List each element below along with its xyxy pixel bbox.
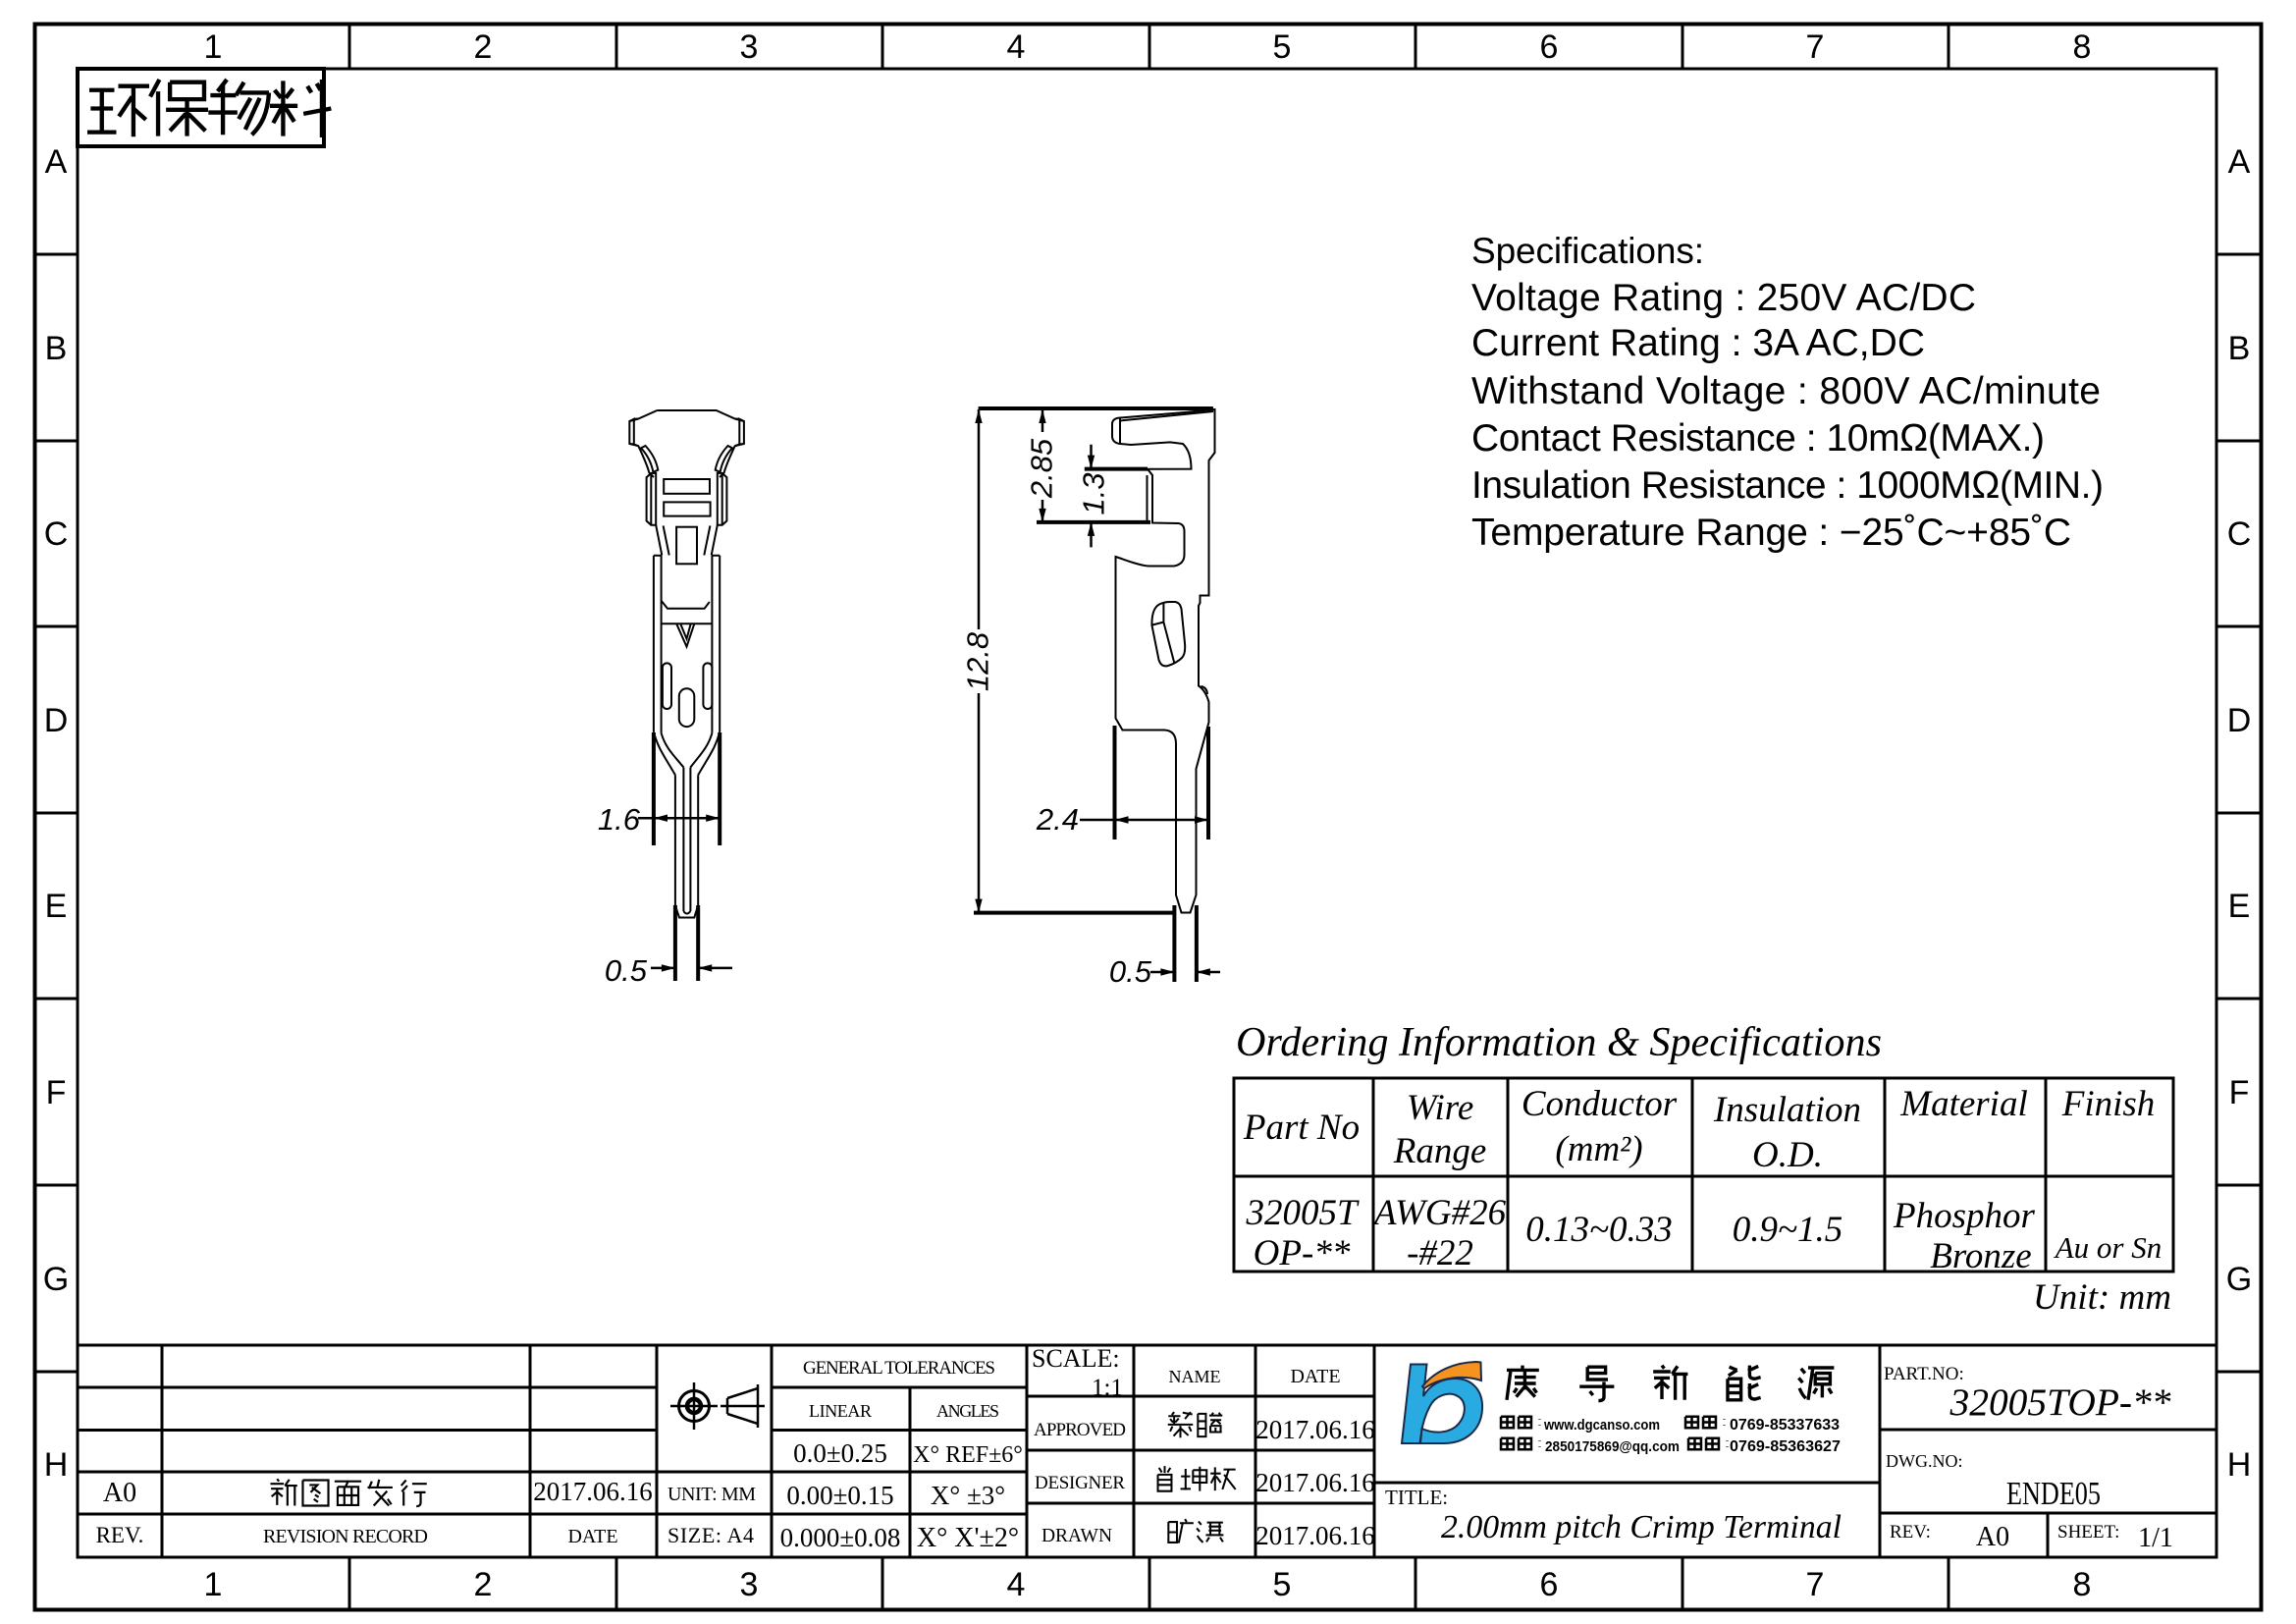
svg-text:GENERAL TOLERANCES: GENERAL TOLERANCES bbox=[803, 1358, 995, 1379]
svg-text:E: E bbox=[2228, 888, 2251, 925]
svg-text:Unit: mm: Unit: mm bbox=[2033, 1277, 2171, 1318]
svg-text:2.00mm pitch Crimp Terminal: 2.00mm pitch Crimp Terminal bbox=[1441, 1509, 1842, 1545]
svg-text:0.0±0.25: 0.0±0.25 bbox=[793, 1438, 887, 1468]
svg-text:Insulation: Insulation bbox=[1713, 1090, 1861, 1130]
svg-text:Phosphor: Phosphor bbox=[1893, 1196, 2036, 1236]
svg-text:5: 5 bbox=[1273, 1566, 1292, 1603]
svg-text:A: A bbox=[45, 143, 68, 181]
svg-text:Withstand Voltage : 800V AC/mi: Withstand Voltage : 800V AC/minute bbox=[1471, 370, 2101, 412]
svg-text:3: 3 bbox=[740, 1566, 759, 1603]
svg-text:2.4: 2.4 bbox=[1036, 802, 1079, 837]
svg-text:0.5: 0.5 bbox=[605, 953, 648, 988]
svg-text:X° REF±6°: X° REF±6° bbox=[913, 1442, 1023, 1468]
svg-text:F: F bbox=[46, 1074, 67, 1111]
svg-text:O.D.: O.D. bbox=[1752, 1135, 1823, 1175]
svg-text:H: H bbox=[44, 1446, 69, 1484]
svg-text:SIZE: A4: SIZE: A4 bbox=[667, 1523, 754, 1547]
svg-text:7: 7 bbox=[1806, 1566, 1825, 1603]
svg-text:SHEET:: SHEET: bbox=[2057, 1522, 2119, 1543]
svg-text:1.6: 1.6 bbox=[598, 802, 641, 837]
svg-text:4: 4 bbox=[1007, 28, 1026, 66]
svg-text:X° ±3°: X° ±3° bbox=[931, 1481, 1005, 1510]
svg-text:(mm²): (mm²) bbox=[1555, 1129, 1642, 1169]
svg-text:ENDE05: ENDE05 bbox=[2006, 1476, 2101, 1512]
svg-text:0769-85363627: 0769-85363627 bbox=[1730, 1438, 1841, 1455]
svg-text:D: D bbox=[44, 702, 69, 739]
svg-text:5: 5 bbox=[1273, 28, 1292, 66]
svg-text:Material: Material bbox=[1899, 1084, 2027, 1124]
svg-text:32005TOP-**: 32005TOP-** bbox=[1949, 1381, 2171, 1424]
svg-text:2017.06.16: 2017.06.16 bbox=[533, 1477, 653, 1506]
svg-text:DESIGNER: DESIGNER bbox=[1035, 1473, 1125, 1493]
svg-text:F: F bbox=[2229, 1074, 2250, 1111]
svg-text:0.00±0.15: 0.00±0.15 bbox=[786, 1481, 893, 1510]
svg-text:B: B bbox=[2228, 330, 2251, 367]
svg-text:Current Rating : 3A AC,DC: Current Rating : 3A AC,DC bbox=[1471, 322, 1925, 364]
svg-text:DATE: DATE bbox=[1290, 1366, 1340, 1387]
svg-text:2017.06.16: 2017.06.16 bbox=[1255, 1468, 1375, 1497]
svg-text:3: 3 bbox=[740, 28, 759, 66]
svg-text:0.000±0.08: 0.000±0.08 bbox=[780, 1523, 901, 1552]
svg-text:UNIT: MM: UNIT: MM bbox=[667, 1484, 756, 1505]
svg-text:A0: A0 bbox=[103, 1478, 136, 1508]
svg-text:Insulation Resistance : 1000MΩ: Insulation Resistance : 1000MΩ(MIN.) bbox=[1471, 464, 2104, 507]
svg-text:-#22: -#22 bbox=[1407, 1233, 1473, 1273]
svg-text:G: G bbox=[2226, 1261, 2252, 1298]
svg-text:2: 2 bbox=[474, 28, 493, 66]
svg-text:0.13~0.33: 0.13~0.33 bbox=[1525, 1210, 1673, 1250]
svg-text:Contact Resistance : 10mΩ(MAX.: Contact Resistance : 10mΩ(MAX.) bbox=[1471, 417, 2045, 460]
svg-text:Conductor: Conductor bbox=[1522, 1084, 1678, 1124]
svg-text:7: 7 bbox=[1806, 28, 1825, 66]
svg-text:OP-**: OP-** bbox=[1254, 1233, 1351, 1273]
svg-text:1:1: 1:1 bbox=[1092, 1375, 1123, 1401]
svg-text:0.5: 0.5 bbox=[1109, 954, 1152, 989]
svg-text:Finish: Finish bbox=[2061, 1084, 2156, 1124]
svg-text:Voltage Rating : 250V AC/DC: Voltage Rating : 250V AC/DC bbox=[1471, 277, 1976, 319]
svg-text:0.9~1.5: 0.9~1.5 bbox=[1733, 1210, 1843, 1250]
svg-text:1/1: 1/1 bbox=[2138, 1523, 2173, 1553]
svg-text:REVISION RECORD: REVISION RECORD bbox=[263, 1526, 428, 1547]
svg-text:E: E bbox=[45, 888, 68, 925]
svg-text:B: B bbox=[45, 330, 68, 367]
svg-text:12.8: 12.8 bbox=[961, 631, 995, 691]
svg-text:D: D bbox=[2227, 702, 2252, 739]
svg-text:REV.: REV. bbox=[96, 1523, 144, 1547]
svg-text:1: 1 bbox=[204, 28, 223, 66]
svg-text:4: 4 bbox=[1007, 1566, 1026, 1603]
svg-text:2017.06.16: 2017.06.16 bbox=[1255, 1521, 1375, 1550]
svg-text:Part No: Part No bbox=[1243, 1108, 1360, 1148]
svg-text:H: H bbox=[2227, 1446, 2252, 1484]
svg-text:SCALE:: SCALE: bbox=[1032, 1344, 1120, 1373]
svg-text:2850175869@qq.com: 2850175869@qq.com bbox=[1545, 1438, 1680, 1455]
svg-text:Ordering Information & Specifi: Ordering Information & Specifications bbox=[1236, 1020, 1882, 1065]
svg-text:Wire: Wire bbox=[1407, 1088, 1474, 1128]
svg-text:2: 2 bbox=[474, 1566, 493, 1603]
svg-text:6: 6 bbox=[1540, 28, 1559, 66]
svg-text:REV:: REV: bbox=[1890, 1522, 1931, 1543]
svg-text:APPROVED: APPROVED bbox=[1034, 1420, 1126, 1440]
svg-text:X° X'±2°: X° X'±2° bbox=[917, 1523, 1019, 1553]
svg-text:C: C bbox=[44, 515, 69, 553]
svg-text:Temperature Range : −25˚C~+85˚: Temperature Range : −25˚C~+85˚C bbox=[1471, 512, 2071, 554]
svg-text:DRAWN: DRAWN bbox=[1041, 1526, 1112, 1546]
svg-text:2017.06.16: 2017.06.16 bbox=[1255, 1415, 1375, 1444]
svg-text:C: C bbox=[2227, 515, 2252, 553]
svg-text:2.85: 2.85 bbox=[1025, 438, 1059, 499]
svg-text:1: 1 bbox=[204, 1566, 223, 1603]
svg-text:NAME: NAME bbox=[1169, 1367, 1221, 1386]
svg-text:DATE: DATE bbox=[567, 1526, 617, 1547]
svg-text:DWG.NO:: DWG.NO: bbox=[1886, 1451, 1963, 1471]
svg-text:Au or Sn: Au or Sn bbox=[2054, 1230, 2163, 1265]
svg-text:A: A bbox=[2228, 143, 2251, 181]
svg-text:LINEAR: LINEAR bbox=[809, 1401, 872, 1421]
svg-text:ANGLES: ANGLES bbox=[936, 1401, 999, 1421]
svg-text:Range: Range bbox=[1393, 1131, 1487, 1171]
svg-text:6: 6 bbox=[1540, 1566, 1559, 1603]
svg-text:8: 8 bbox=[2073, 28, 2092, 66]
svg-text:A0: A0 bbox=[1976, 1522, 2009, 1552]
svg-text:TITLE:: TITLE: bbox=[1385, 1486, 1448, 1509]
svg-text:Bronze: Bronze bbox=[1930, 1236, 2031, 1276]
svg-text:G: G bbox=[43, 1261, 69, 1298]
svg-text:AWG#26: AWG#26 bbox=[1371, 1193, 1507, 1233]
svg-text:www.dgcanso.com: www.dgcanso.com bbox=[1543, 1417, 1660, 1434]
svg-text:32005T: 32005T bbox=[1245, 1193, 1360, 1233]
svg-text:0769-85337633: 0769-85337633 bbox=[1730, 1417, 1840, 1434]
svg-text:1.3: 1.3 bbox=[1077, 472, 1111, 514]
svg-text:8: 8 bbox=[2073, 1566, 2092, 1603]
svg-text:Specifications:: Specifications: bbox=[1471, 231, 1704, 271]
